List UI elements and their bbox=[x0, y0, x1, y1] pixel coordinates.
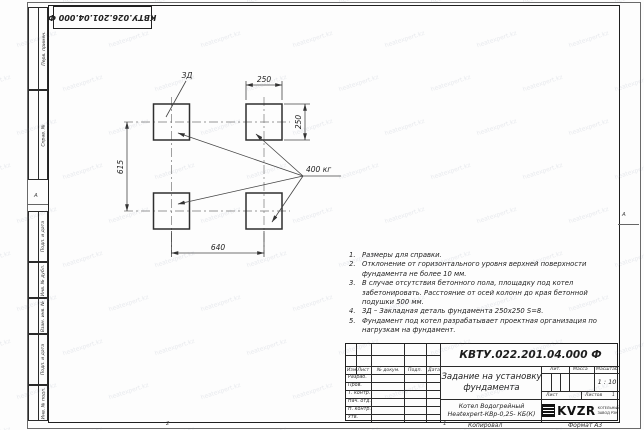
product-line2: Heatexpert-КВр-0,25- КБ(К) bbox=[448, 411, 536, 419]
zone-letter-right: А bbox=[622, 212, 626, 218]
doc-title-cell: Задание на установку фундамента bbox=[440, 366, 542, 400]
margin-graph: Инв. № подл. bbox=[28, 385, 48, 421]
watermark-text: heatexpert.kz bbox=[0, 338, 12, 357]
signer-row-label: Пров. bbox=[348, 383, 378, 391]
zone-tick-left bbox=[27, 204, 48, 205]
drawing-sheet: КВТУ.026.201.04.000 Ф Перв. примен.Справ… bbox=[0, 0, 644, 430]
watermark-text: heatexpert.kz bbox=[0, 426, 12, 430]
col-list: Лист bbox=[358, 368, 370, 373]
sheet-label: Лист bbox=[546, 393, 558, 398]
notes-block: 1.Размеры для справки.2.Отклонение от го… bbox=[349, 251, 613, 336]
mass-label: Масса bbox=[573, 367, 588, 372]
watermark-text: heatexpert.kz bbox=[0, 74, 12, 93]
note-item: 5.Фундамент под котел разрабатывает прое… bbox=[349, 317, 613, 336]
watermark-text: heatexpert.kz bbox=[0, 162, 12, 181]
note-item: 1.Размеры для справки. bbox=[349, 251, 613, 260]
product-line1: Котел Водогрейный bbox=[459, 403, 525, 411]
margin-graph: Перв. примен. bbox=[28, 7, 48, 90]
kvzr-logo-text: KVZR bbox=[557, 404, 596, 418]
scale-value: 1 : 10 bbox=[594, 373, 620, 391]
kvzr-logo-icon bbox=[542, 404, 555, 417]
margin-graph: Инв. № дубл. bbox=[28, 262, 48, 298]
scale-label: Масштаб bbox=[596, 367, 618, 372]
col-podp: Подп. bbox=[408, 368, 422, 373]
mirrored-designation-box: КВТУ.026.201.04.000 Ф bbox=[53, 6, 152, 29]
copied-label: Копировал bbox=[468, 422, 502, 429]
zone-tick-right bbox=[618, 224, 639, 225]
designation-cell: КВТУ.022.201.04.000 Ф bbox=[440, 344, 620, 367]
title-block: КВТУ.022.201.04.000 Ф Задание на установ… bbox=[345, 343, 618, 421]
watermark-text: heatexpert.kz bbox=[0, 250, 12, 269]
sheets-label: Листов bbox=[585, 393, 602, 398]
signer-row-label: Т. контр. bbox=[348, 391, 378, 399]
margin-graph: Взам. инв. № bbox=[28, 298, 48, 334]
col-izm: Изм. bbox=[347, 368, 358, 373]
company-cell: KVZR КОТЕЛЬНЫЙ ЗАВОД РЗК bbox=[541, 399, 620, 422]
note-item: 2.Отклонение от горизонтального уровня в… bbox=[349, 260, 613, 279]
note-item: 4.ЗД – Закладная деталь фундамента 250х2… bbox=[349, 307, 613, 316]
watermark-text: heatexpert.kz bbox=[0, 0, 12, 5]
format-label: Формат А3 bbox=[568, 422, 602, 429]
product-cell: Котел Водогрейный Heatexpert-КВр-0,25- К… bbox=[440, 399, 542, 422]
sheets-value: 1 bbox=[612, 393, 615, 398]
lit-label: Лит. bbox=[550, 367, 561, 372]
margin-graph: Подп. и дата bbox=[28, 334, 48, 385]
note-item: 3.В случае отсутствия бетонного пола, пл… bbox=[349, 279, 613, 307]
zone-number-bottom-1: 2 bbox=[166, 421, 170, 427]
signer-row-label: Утв. bbox=[348, 415, 378, 423]
margin-graph: Справ. № bbox=[28, 90, 48, 180]
margin-graph: Подп. и дата bbox=[28, 211, 48, 262]
signer-row-label: Разраб. bbox=[348, 375, 378, 383]
company-tagline: КОТЕЛЬНЫЙ ЗАВОД РЗК bbox=[598, 406, 620, 414]
col-ndoc: № докум. bbox=[377, 368, 400, 373]
zone-letter-left: А bbox=[34, 193, 38, 199]
mirrored-designation: КВТУ.026.201.04.000 Ф bbox=[48, 13, 156, 22]
col-data: Дата bbox=[428, 368, 440, 373]
